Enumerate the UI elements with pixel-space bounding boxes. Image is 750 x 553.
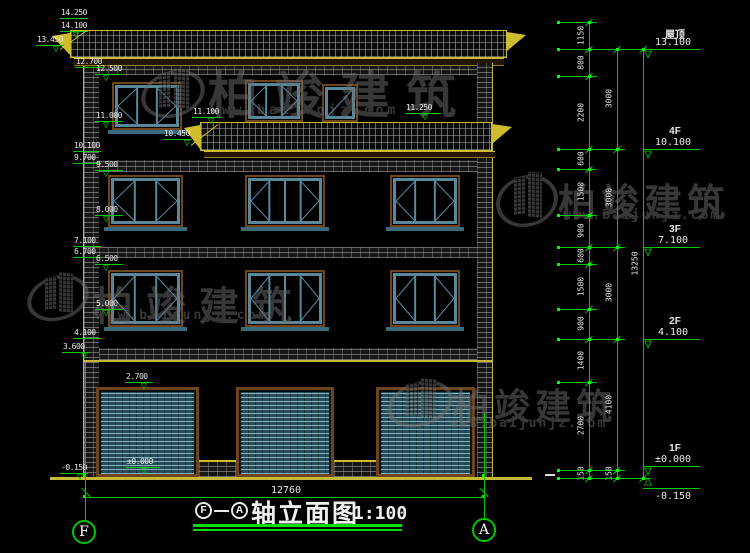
title-axis-end-bubble: A	[231, 502, 248, 519]
elevation-marker-label: 4.100	[74, 328, 96, 337]
floor-level-triangle: △	[638, 476, 658, 488]
elevation-marker-triangle: ▽	[100, 264, 112, 274]
dim-chain-label: 900	[577, 304, 586, 344]
dim-tick-dot	[588, 263, 591, 266]
dim-chain-line	[617, 49, 618, 478]
elevation-marker-label: 10.450	[164, 129, 190, 138]
floor-elevation-label: 13.100	[648, 37, 698, 48]
title-underline-1	[193, 524, 402, 527]
floor-elevation-label: 4.100	[648, 327, 698, 338]
dim-tick-dot	[557, 263, 560, 266]
elevation-marker-triangle: ▽	[78, 352, 90, 362]
annotation-layer: 14.25014.100▽13.450▽12.70012.500▽11.000▽…	[0, 0, 750, 553]
dim-tick-dot	[557, 477, 560, 480]
leader-line	[191, 124, 219, 146]
dim-tick-dot	[557, 48, 560, 51]
elevation-marker-triangle: ▽	[100, 215, 112, 225]
elevation-marker-label: -0.150	[61, 463, 87, 472]
elevation-marker-label: 14.250	[61, 8, 87, 17]
elevation-marker-label: 11.250	[406, 103, 432, 112]
elevation-marker-label: 7.100	[74, 236, 96, 245]
elevation-marker-label: ±0.000	[127, 457, 153, 466]
elevation-marker-label: 5.000	[96, 299, 118, 308]
grid-line-a	[484, 413, 485, 519]
dim-tick-dot	[557, 21, 560, 24]
floor-level-triangle: ▽	[638, 247, 658, 259]
floor-elevation-label: 10.100	[648, 137, 698, 148]
title-underline-2	[193, 529, 402, 531]
elevation-marker-label: 9.500	[96, 160, 118, 169]
elevation-marker-triangle: ▽	[100, 74, 112, 84]
elevation-marker-label: 9.700	[74, 153, 96, 162]
axis-bubble-f-label: F	[79, 524, 89, 540]
elevation-marker-triangle: ▽	[138, 382, 150, 392]
dim-chain-label: 2200	[577, 92, 586, 132]
dim-tick-dot	[557, 308, 560, 311]
dim-chain-label: 150	[605, 454, 614, 494]
elevation-marker-label: 2.700	[126, 372, 148, 381]
elevation-marker-triangle: ▽	[100, 170, 112, 180]
dim-tick-dot	[557, 148, 560, 151]
elevation-marker-triangle: ▽	[100, 121, 112, 131]
floor-elevation-label: -0.150	[648, 491, 698, 502]
floor-name-label: 2F	[652, 316, 698, 327]
title-dash	[214, 510, 229, 512]
dim-tick-dot	[588, 168, 591, 171]
floor-level-triangle: ▽	[638, 339, 658, 351]
title-axis-start-bubble: F	[195, 502, 212, 519]
dim-tick-dot	[557, 75, 560, 78]
dim-chain-label: 3000	[605, 79, 614, 119]
dim-chain-label: 2700	[577, 406, 586, 446]
elevation-marker-label: 3.600	[63, 342, 85, 351]
title-axis-end: A	[236, 505, 243, 516]
dim-tick-dot	[557, 381, 560, 384]
floor-elevation-label: ±0.000	[648, 454, 698, 465]
elevation-marker-label: 6.500	[96, 254, 118, 263]
floor-name-label: 3F	[652, 224, 698, 235]
floor-level-line	[643, 488, 700, 489]
dim-chain-label: 3000	[605, 178, 614, 218]
floor-elevation-label: 7.100	[648, 235, 698, 246]
elevation-marker-label: 8.000	[96, 205, 118, 214]
elevation-marker-label: 11.000	[96, 111, 122, 120]
dim-tick-dot	[557, 168, 560, 171]
title-axis-start: F	[200, 505, 206, 516]
elevation-marker-triangle: ▽	[419, 113, 431, 123]
dim-chain-line	[589, 22, 590, 478]
dim-chain-label: 150	[577, 454, 586, 494]
dim-tick-dot	[616, 246, 619, 249]
elevation-marker-label: 10.100	[74, 141, 100, 150]
dim-tick-dot	[588, 75, 591, 78]
dim-chain-label: 4100	[605, 384, 614, 424]
dim-chain-line	[643, 49, 644, 478]
dim-tick-dot	[557, 246, 560, 249]
dim-tick-dot	[557, 338, 560, 341]
elevation-marker-line	[60, 18, 88, 19]
dim-tick-dot	[616, 338, 619, 341]
elevation-marker-label: 13.450	[37, 35, 63, 44]
dim-chain-label: 3000	[605, 273, 614, 313]
elevation-marker-label: 6.700	[74, 247, 96, 256]
dim-tick-dot	[588, 381, 591, 384]
floor-level-triangle: ▽	[638, 149, 658, 161]
floor-name-label: 4F	[652, 126, 698, 137]
elevation-marker-line	[73, 338, 101, 339]
drawing-scale: 1:100	[353, 503, 407, 524]
elevation-marker-label: 14.100	[61, 21, 87, 30]
elevation-marker-triangle: ▽	[50, 45, 62, 55]
dim-tick-dot	[588, 214, 591, 217]
elevation-marker-triangle: ▽	[100, 309, 112, 319]
dim-tick-dot	[557, 469, 560, 472]
dim-extension-line	[558, 382, 597, 383]
dim-chain-label: 1500	[577, 266, 586, 306]
dim-chain-label: 1400	[577, 340, 586, 380]
dim-tick-dot	[588, 308, 591, 311]
axis-bubble-a-label: A	[479, 522, 489, 538]
dim-tick-dot	[616, 469, 619, 472]
floor-level-triangle: ▽	[638, 49, 658, 61]
elevation-marker-label: 12.500	[96, 64, 122, 73]
axis-bubble-f: F	[72, 520, 96, 544]
dim-tick-dot	[588, 21, 591, 24]
cad-elevation-drawing: 柏竣建筑www.baijunjz.com柏竣建筑www.baijunjz.com…	[0, 0, 750, 553]
elevation-marker-label: 11.100	[193, 107, 219, 116]
dim-tick-dot	[616, 148, 619, 151]
floor-name-label: 1F	[652, 443, 698, 454]
axis-bubble-a: A	[472, 518, 496, 542]
dim-chain-label: 800	[577, 42, 586, 82]
elevation-marker-line	[73, 151, 101, 152]
dim-tick-dot	[557, 214, 560, 217]
dim-chain-label: 1500	[577, 172, 586, 212]
elevation-marker-triangle: ▽	[138, 467, 150, 477]
